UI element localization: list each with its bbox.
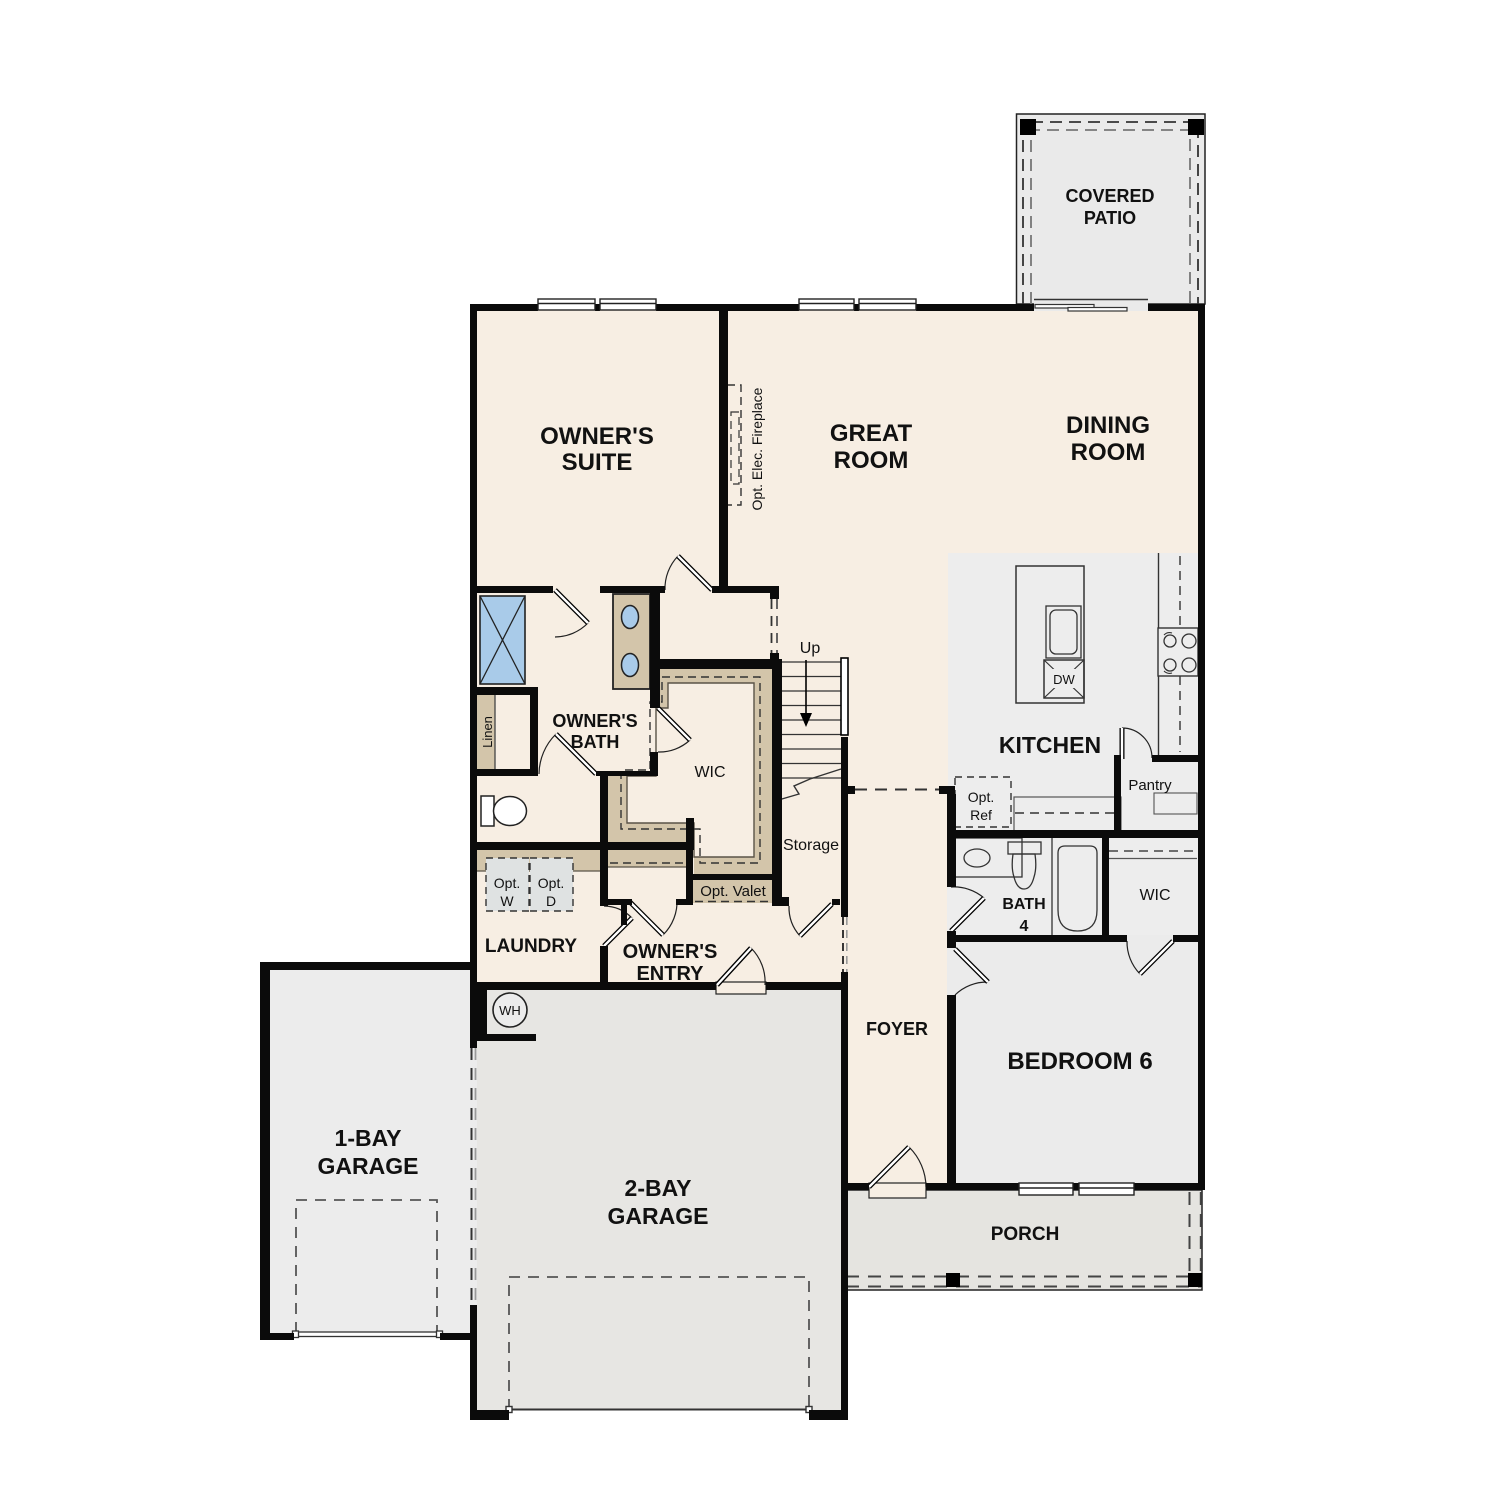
- svg-text:Linen: Linen: [480, 716, 495, 748]
- svg-text:W: W: [500, 893, 514, 909]
- svg-text:DW: DW: [1053, 672, 1075, 687]
- svg-text:4: 4: [1020, 918, 1029, 935]
- svg-text:GARAGE: GARAGE: [318, 1153, 419, 1179]
- svg-text:Opt. Elec. Fireplace: Opt. Elec. Fireplace: [749, 387, 765, 510]
- svg-text:ROOM: ROOM: [834, 447, 909, 474]
- svg-text:Opt. Valet: Opt. Valet: [700, 883, 766, 900]
- svg-text:Opt.: Opt.: [538, 875, 564, 891]
- svg-text:DINING: DINING: [1066, 412, 1150, 439]
- svg-text:Storage: Storage: [783, 837, 839, 854]
- svg-text:Opt.: Opt.: [968, 789, 994, 805]
- svg-text:COVERED: COVERED: [1065, 186, 1154, 206]
- svg-text:LAUNDRY: LAUNDRY: [485, 936, 578, 957]
- svg-text:GARAGE: GARAGE: [608, 1203, 709, 1229]
- svg-text:BATH: BATH: [1002, 896, 1045, 913]
- svg-text:SUITE: SUITE: [562, 449, 633, 476]
- svg-text:WIC: WIC: [694, 764, 725, 781]
- svg-text:Up: Up: [800, 640, 821, 657]
- svg-text:ROOM: ROOM: [1071, 439, 1146, 466]
- svg-text:OWNER'S: OWNER'S: [540, 423, 654, 450]
- svg-text:WH: WH: [499, 1003, 521, 1018]
- svg-text:BATH: BATH: [571, 732, 620, 752]
- svg-text:BEDROOM 6: BEDROOM 6: [1007, 1048, 1152, 1075]
- svg-text:PORCH: PORCH: [991, 1224, 1060, 1245]
- svg-text:D: D: [546, 893, 556, 909]
- svg-text:1-BAY: 1-BAY: [335, 1125, 402, 1151]
- svg-text:GREAT: GREAT: [830, 420, 913, 447]
- svg-text:KITCHEN: KITCHEN: [999, 732, 1101, 758]
- svg-text:ENTRY: ENTRY: [636, 963, 704, 985]
- svg-text:OWNER'S: OWNER'S: [623, 941, 718, 963]
- svg-text:WIC: WIC: [1139, 887, 1170, 904]
- svg-text:PATIO: PATIO: [1084, 208, 1136, 228]
- svg-text:Ref: Ref: [970, 807, 992, 823]
- svg-text:Pantry: Pantry: [1128, 777, 1172, 794]
- svg-text:Opt.: Opt.: [494, 875, 520, 891]
- svg-text:2-BAY: 2-BAY: [625, 1175, 692, 1201]
- svg-text:FOYER: FOYER: [866, 1019, 928, 1039]
- svg-text:OWNER'S: OWNER'S: [552, 711, 637, 731]
